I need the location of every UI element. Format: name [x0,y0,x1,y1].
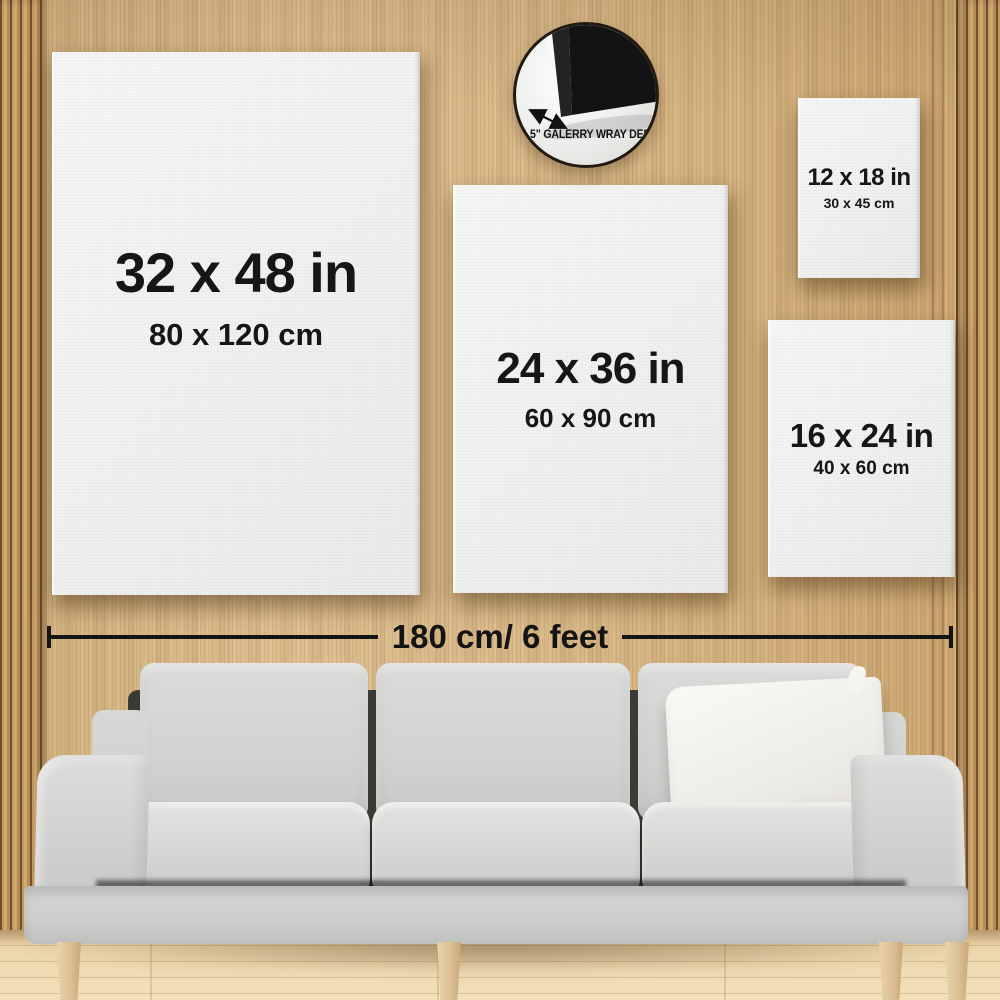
size-cm-label: 40 x 60 cm [813,459,909,478]
size-inches-label: 16 x 24 in [790,419,934,452]
size-inches-label: 12 x 18 in [807,166,910,190]
gallery-wrap-depth-label: 1.5" GALERRY WRAY DEPT [522,129,651,141]
canvas-corner-icon [516,25,659,168]
canvas-labels: 32 x 48 in 80 x 120 cm [115,245,357,350]
canvas-labels: 24 x 36 in 60 x 90 cm [496,347,684,431]
double-arrow-icon [536,113,560,125]
size-canvas-12x18: 12 x 18 in 30 x 45 cm [798,98,920,278]
sofa-base [24,886,968,944]
size-inches-label: 24 x 36 in [496,347,684,391]
measure-line-left [51,635,378,639]
size-cm-label: 80 x 120 cm [149,319,323,350]
size-inches-label: 32 x 48 in [115,245,357,301]
measure-line-right [622,635,949,639]
sofa [0,650,1000,1000]
canvas-labels: 16 x 24 in 40 x 60 cm [790,419,934,478]
size-cm-label: 60 x 90 cm [525,405,657,431]
canvas-labels: 12 x 18 in 30 x 45 cm [807,166,910,210]
size-canvas-32x48: 32 x 48 in 80 x 120 cm [52,52,420,595]
back-cushion-middle [376,663,630,821]
gallery-wrap-depth-badge: 1.5" GALERRY WRAY DEPT [513,22,659,168]
measure-tick-right [949,626,953,648]
size-canvas-16x24: 16 x 24 in 40 x 60 cm [768,320,955,577]
canvas-size-guide-scene: 32 x 48 in 80 x 120 cm 24 x 36 in 60 x 9… [0,0,1000,1000]
back-cushion-left [140,663,368,821]
size-cm-label: 30 x 45 cm [824,196,895,210]
size-canvas-24x36: 24 x 36 in 60 x 90 cm [453,185,728,593]
width-measurement: 180 cm/ 6 feet [47,622,953,652]
